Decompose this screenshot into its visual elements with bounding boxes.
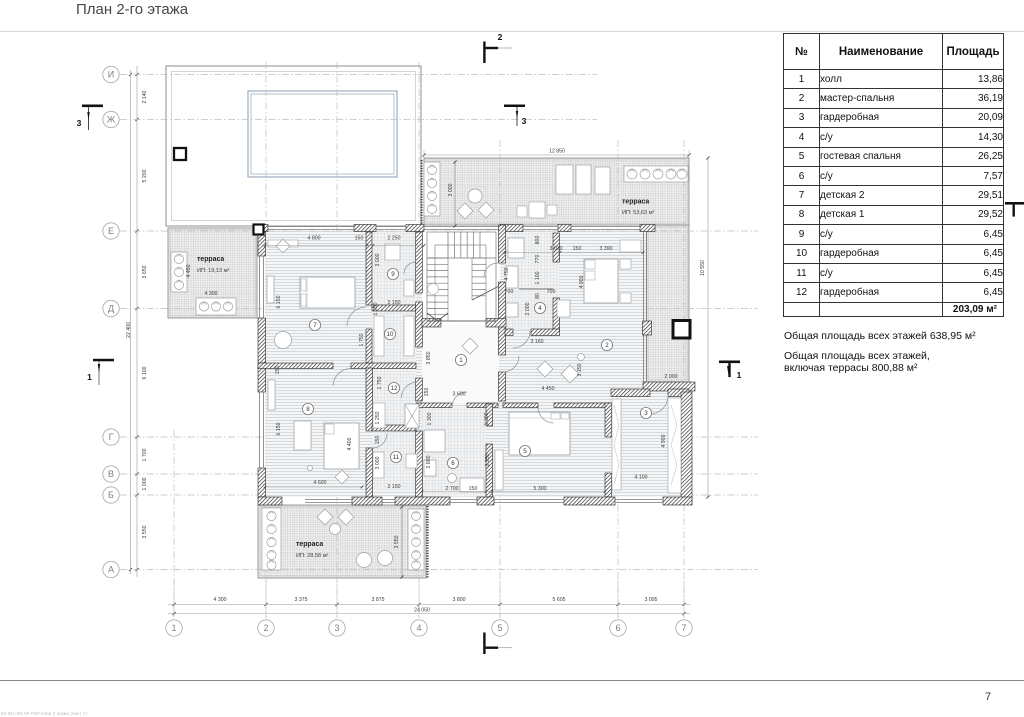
svg-text:4: 4 [538,305,542,312]
svg-text:3 150: 3 150 [577,363,583,376]
svg-text:1: 1 [737,370,742,380]
svg-text:4 800: 4 800 [308,236,321,242]
svg-text:2 250: 2 250 [388,236,401,242]
svg-text:В: В [108,469,114,479]
svg-text:5: 5 [497,623,502,633]
svg-text:24 050: 24 050 [414,608,430,614]
svg-text:10 550: 10 550 [700,260,706,276]
svg-text:3 000: 3 000 [448,183,454,196]
svg-text:150: 150 [469,486,478,492]
svg-text:6: 6 [615,623,620,633]
svg-text:ИП: 19,13 м²: ИП: 19,13 м² [197,268,230,274]
svg-text:4 600: 4 600 [314,480,327,486]
svg-text:ИП: 28,58 м²: ИП: 28,58 м² [296,553,329,559]
svg-text:4 900: 4 900 [579,275,585,288]
svg-text:3 850: 3 850 [426,351,432,364]
svg-text:7: 7 [313,322,317,329]
svg-text:3: 3 [522,116,527,126]
svg-text:8: 8 [306,406,310,413]
svg-text:Г: Г [109,432,114,442]
svg-text:4 100: 4 100 [635,475,648,481]
svg-text:1 000: 1 000 [142,477,148,490]
svg-text:150: 150 [275,366,281,375]
svg-text:2: 2 [498,32,503,42]
svg-text:терраса: терраса [296,541,323,548]
svg-text:6 150: 6 150 [276,422,282,435]
svg-text:5 605: 5 605 [553,597,566,603]
svg-text:3 000: 3 000 [375,456,381,469]
svg-text:1 750: 1 750 [377,376,383,389]
svg-text:3: 3 [334,623,339,633]
svg-text:Д: Д [108,304,114,314]
svg-text:4 750: 4 750 [504,267,510,280]
svg-text:3 375: 3 375 [295,597,308,603]
svg-text:терраса: терраса [622,199,649,206]
svg-text:4: 4 [416,623,421,633]
svg-text:4 300: 4 300 [205,291,218,297]
svg-text:700: 700 [547,289,556,295]
svg-text:3 800: 3 800 [453,597,466,603]
svg-text:1 250: 1 250 [373,302,379,315]
svg-text:3 095: 3 095 [645,597,658,603]
svg-text:Ж: Ж [107,115,116,125]
svg-text:10: 10 [387,331,394,338]
svg-text:2 800: 2 800 [426,455,432,468]
svg-text:3 160: 3 160 [531,339,544,345]
svg-text:150: 150 [424,388,430,397]
svg-text:2: 2 [263,623,268,633]
svg-text:2 950: 2 950 [485,453,491,466]
svg-text:ИП: 53,63 м²: ИП: 53,63 м² [622,210,655,216]
svg-text:4 300: 4 300 [214,597,227,603]
svg-text:5: 5 [523,448,527,455]
svg-text:700: 700 [505,289,514,295]
svg-text:7: 7 [681,623,686,633]
svg-text:150: 150 [355,236,364,242]
svg-text:2 000: 2 000 [525,302,531,315]
svg-text:4 450: 4 450 [186,264,192,277]
svg-text:80: 80 [535,293,541,299]
svg-text:2 700: 2 700 [446,486,459,492]
svg-text:1 750: 1 750 [359,333,365,346]
svg-text:терраса: терраса [197,256,224,263]
svg-text:1 100: 1 100 [535,271,541,284]
svg-text:3 550: 3 550 [394,535,400,548]
svg-text:3 390: 3 390 [600,246,613,252]
svg-text:1 300: 1 300 [427,412,433,425]
svg-text:2 140: 2 140 [142,90,148,103]
svg-text:3 875: 3 875 [372,597,385,603]
svg-text:1 300: 1 300 [484,412,490,425]
svg-text:1: 1 [87,372,92,382]
svg-text:Б: Б [108,490,114,500]
svg-text:3 650: 3 650 [142,265,148,278]
svg-text:3 550: 3 550 [142,525,148,538]
svg-text:4 900: 4 900 [661,434,667,447]
svg-text:2 000: 2 000 [665,374,678,380]
svg-text:5 200: 5 200 [142,169,148,182]
svg-text:1: 1 [459,357,463,364]
svg-text:Е: Е [108,226,114,236]
svg-text:12 850: 12 850 [549,149,565,155]
svg-text:5 300: 5 300 [534,486,547,492]
svg-text:А: А [108,565,114,575]
svg-text:3 000: 3 000 [375,253,381,266]
svg-text:1: 1 [171,623,176,633]
svg-text:770: 770 [535,255,541,264]
svg-text:150: 150 [573,246,582,252]
svg-text:И: И [108,70,114,80]
svg-text:22 400: 22 400 [126,322,132,338]
svg-text:1 700: 1 700 [142,448,148,461]
svg-text:2 150: 2 150 [388,484,401,490]
svg-text:3 600: 3 600 [453,392,466,398]
svg-text:12: 12 [391,385,398,392]
svg-text:4 450: 4 450 [542,386,555,392]
svg-text:800: 800 [535,236,541,245]
svg-text:6 100: 6 100 [142,366,148,379]
svg-text:6: 6 [451,460,455,467]
svg-text:2 150: 2 150 [388,300,401,306]
svg-text:3 010: 3 010 [550,246,563,252]
svg-text:3: 3 [77,118,82,128]
svg-text:3: 3 [644,410,648,417]
svg-text:6 150: 6 150 [276,295,282,308]
svg-text:11: 11 [393,454,400,461]
svg-text:4 400: 4 400 [347,437,353,450]
svg-text:2: 2 [605,342,609,349]
svg-text:9: 9 [391,271,395,278]
svg-text:150: 150 [375,436,381,445]
svg-text:1 250: 1 250 [375,411,381,424]
